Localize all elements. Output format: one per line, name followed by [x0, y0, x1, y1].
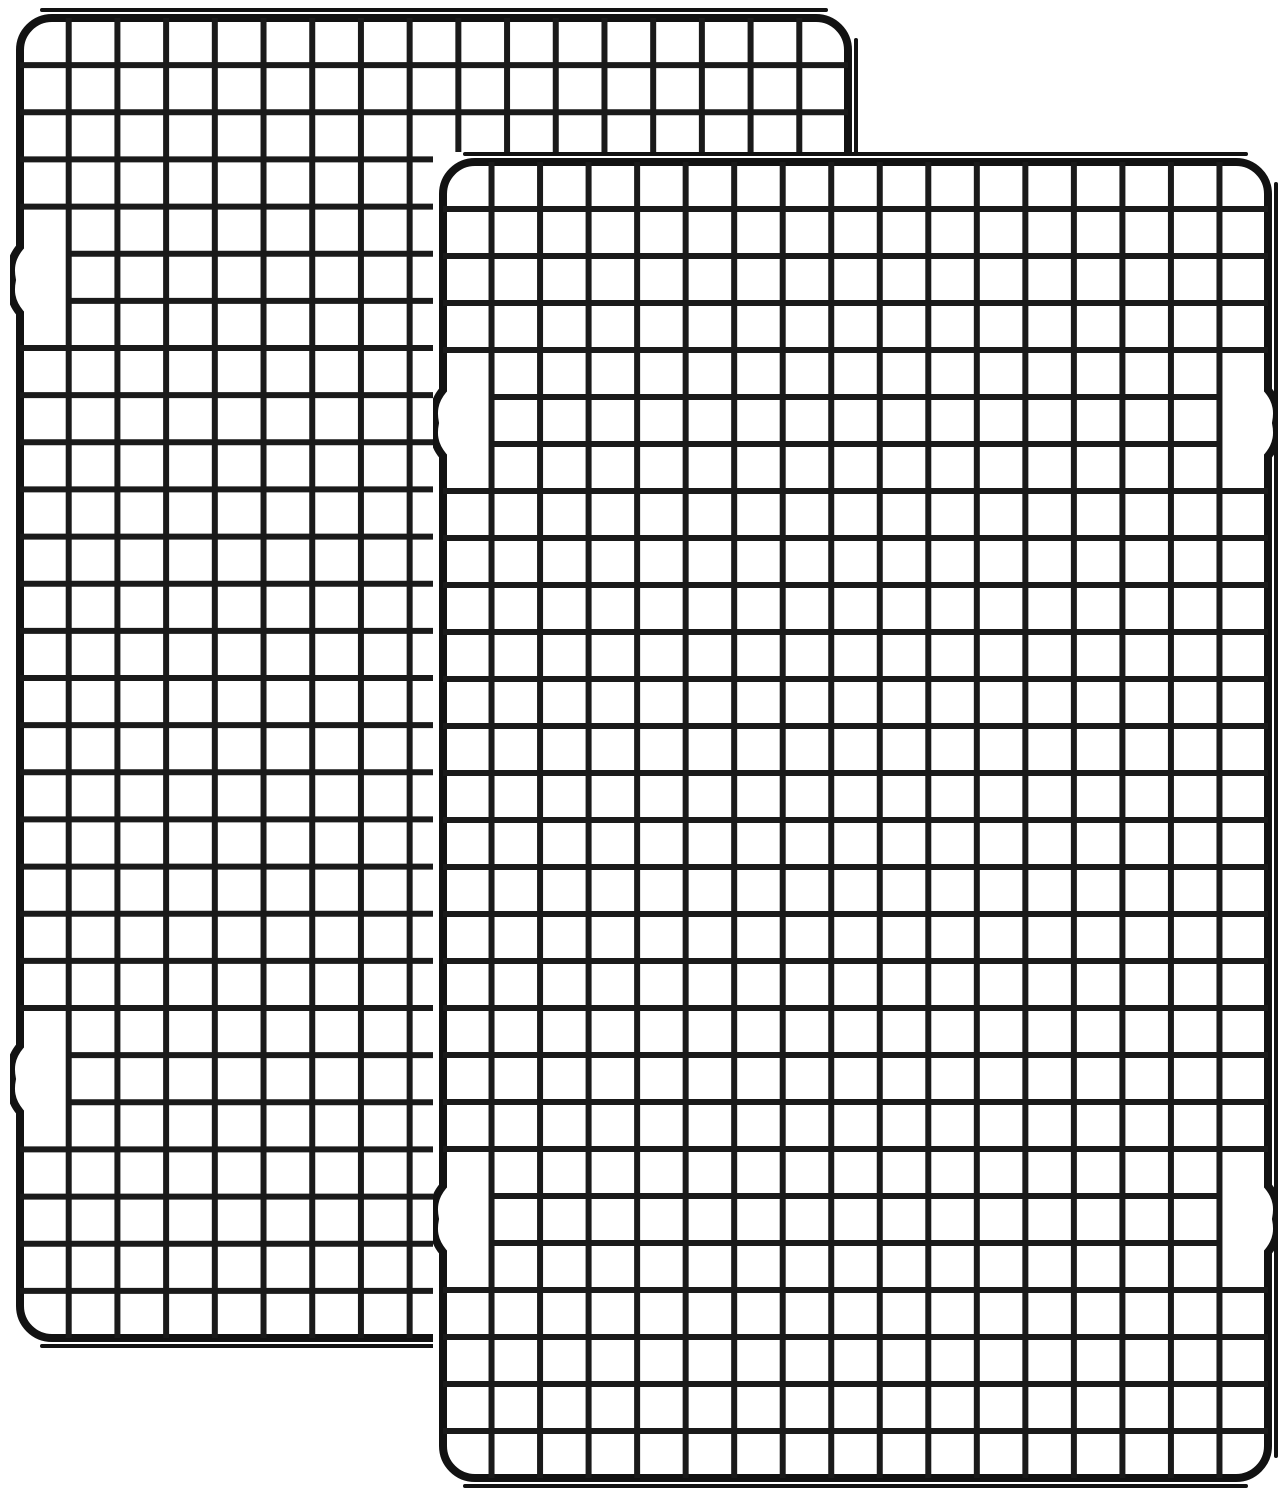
product-photo [0, 0, 1283, 1500]
front-cooling-rack [433, 152, 1278, 1488]
